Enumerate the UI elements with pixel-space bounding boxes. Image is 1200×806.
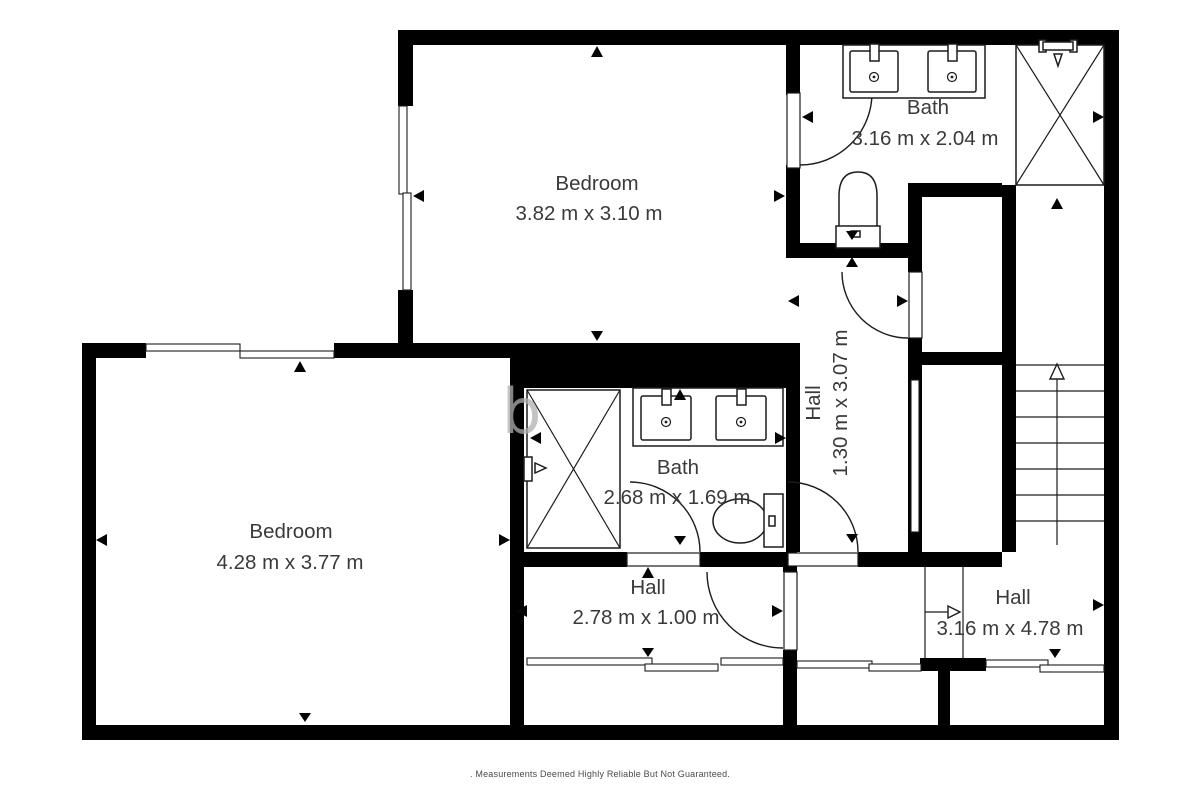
toilet-icon — [836, 172, 880, 248]
door-hall-closet — [842, 272, 922, 338]
fixtures — [524, 40, 1104, 548]
room-dims-bedroom-left: 4.28 m x 3.77 m — [217, 551, 364, 574]
door-hall-bottom — [707, 572, 797, 650]
window-icon — [403, 193, 411, 290]
room-label-bath-top: Bath — [907, 96, 949, 119]
vanity-middle-bath — [633, 388, 783, 446]
window-icon — [527, 658, 652, 665]
stairs-upper — [1016, 364, 1104, 545]
room-label-bedroom-left: Bedroom — [249, 520, 332, 543]
floorplan-page: b Bedroom 3.82 m x 3.10 m Bath 3.16 m x … — [0, 0, 1200, 806]
window-icon — [1040, 665, 1104, 672]
sink-icon — [716, 389, 766, 440]
shower-icon — [1016, 40, 1104, 185]
window-icon — [399, 106, 407, 194]
room-label-bedroom-top: Bedroom — [555, 172, 638, 195]
stairs-lower — [925, 567, 963, 658]
room-label-hall-bottom: Hall — [630, 576, 665, 599]
window-icon — [645, 664, 718, 671]
room-dims-bedroom-top: 3.82 m x 3.10 m — [516, 202, 663, 225]
sink-icon — [928, 44, 976, 92]
stairs-up-arrow-icon — [1050, 364, 1064, 379]
room-dims-bath-middle: 2.68 m x 1.69 m — [604, 486, 751, 509]
window-icon — [869, 664, 921, 671]
svg-text:1.30 m x 3.07 m: 1.30 m x 3.07 m — [829, 330, 852, 477]
wall-glazing-icon — [911, 380, 919, 532]
room-dims-bath-top: 3.16 m x 2.04 m — [852, 127, 999, 150]
window-icon — [146, 344, 240, 351]
room-label-bath-middle: Bath — [657, 456, 699, 479]
sink-icon — [850, 44, 898, 92]
window-icon — [240, 351, 334, 358]
footer-disclaimer: . Measurements Deemed Highly Reliable Bu… — [470, 769, 730, 779]
room-dims-hall-bottom: 2.78 m x 1.00 m — [573, 606, 720, 629]
room-label-hall-vertical: Hall 1.30 m x 3.07 m — [802, 330, 852, 477]
window-icon — [986, 660, 1048, 667]
room-label-hall-right: Hall — [995, 586, 1030, 609]
room-dims-hall-right: 3.16 m x 4.78 m — [937, 617, 1084, 640]
floorplan-canvas: b Bedroom 3.82 m x 3.10 m Bath 3.16 m x … — [0, 0, 1200, 806]
vanity-top-bath — [843, 44, 985, 98]
window-icon — [721, 658, 783, 665]
window-icon — [797, 661, 872, 668]
svg-text:Hall: Hall — [802, 385, 825, 420]
watermark: b — [502, 375, 541, 448]
